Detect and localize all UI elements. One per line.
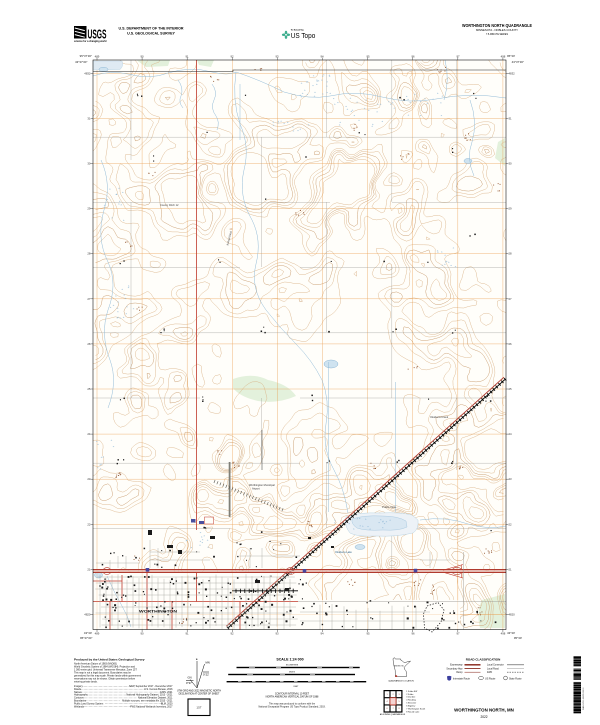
svg-text:25: 25 bbox=[87, 387, 91, 391]
svg-text:Interstate Route: Interstate Route bbox=[453, 678, 471, 681]
svg-text:498: 498 bbox=[501, 632, 506, 636]
svg-text:91: 91 bbox=[185, 632, 189, 636]
svg-text:Okabena Creek: Okabena Creek bbox=[430, 415, 449, 419]
svg-text:Local Connector: Local Connector bbox=[487, 664, 504, 667]
svg-text:5 Brewster: 5 Brewster bbox=[406, 702, 416, 705]
svg-text:NORTH AMERICAN VERTICAL DATUM: NORTH AMERICAN VERTICAL DATUM OF 1988 bbox=[266, 696, 319, 699]
svg-text:4832: 4832 bbox=[509, 71, 516, 75]
svg-text:US Route: US Route bbox=[485, 678, 496, 681]
svg-text:28: 28 bbox=[87, 252, 91, 256]
svg-text:★: ★ bbox=[196, 657, 199, 661]
svg-text:Prairie View: Prairie View bbox=[382, 505, 396, 509]
svg-text:43°37'30": 43°37'30" bbox=[75, 60, 87, 64]
svg-text:FEET: FEET bbox=[294, 686, 300, 688]
svg-text:26: 26 bbox=[509, 342, 513, 346]
svg-text:U.S. GEOLOGICAL SURVEY: U.S. GEOLOGICAL SURVEY bbox=[127, 32, 175, 36]
svg-text:97: 97 bbox=[456, 55, 460, 59]
svg-text:30: 30 bbox=[509, 162, 513, 166]
svg-text:Ramp: Ramp bbox=[456, 672, 463, 674]
svg-text:0°37´: 0°37´ bbox=[186, 681, 193, 685]
svg-text:25: 25 bbox=[509, 387, 513, 391]
svg-text:21: 21 bbox=[509, 567, 513, 571]
svg-text:95°30': 95°30' bbox=[514, 636, 523, 640]
svg-text:24: 24 bbox=[87, 432, 91, 436]
svg-text:95°30': 95°30' bbox=[507, 54, 516, 58]
svg-text:15T: 15T bbox=[196, 706, 201, 710]
svg-text:23: 23 bbox=[509, 477, 513, 481]
svg-text:US Topo: US Topo bbox=[291, 31, 316, 40]
svg-text:Wetlands: Wetlands bbox=[74, 705, 85, 708]
svg-text:43°37'30": 43°37'30" bbox=[512, 60, 524, 64]
svg-text:26: 26 bbox=[87, 342, 91, 346]
svg-text:4820: 4820 bbox=[509, 613, 516, 617]
svg-text:96: 96 bbox=[411, 55, 415, 59]
svg-text:31: 31 bbox=[509, 116, 513, 120]
svg-text:43°30': 43°30' bbox=[507, 631, 516, 635]
svg-text:498: 498 bbox=[501, 55, 506, 59]
svg-text:ADJOINING QUADRANGLES: ADJOINING QUADRANGLES bbox=[380, 713, 406, 716]
svg-text:6 Bigelow: 6 Bigelow bbox=[406, 706, 416, 708]
svg-text:24: 24 bbox=[509, 432, 513, 436]
svg-text:95°37'30": 95°37'30" bbox=[80, 636, 92, 640]
svg-text:GN: GN bbox=[188, 676, 192, 680]
svg-text:FWS National Wetlands Inventor: FWS National Wetlands Inventory, 2017 bbox=[130, 705, 173, 708]
svg-text:94: 94 bbox=[320, 632, 324, 636]
svg-text:96: 96 bbox=[411, 632, 415, 636]
svg-text:8 Round Lake: 8 Round Lake bbox=[406, 711, 420, 713]
svg-text:Okabena Lake: Okabena Lake bbox=[335, 550, 352, 554]
svg-text:2 Fulda: 2 Fulda bbox=[406, 694, 414, 696]
svg-text:U.S. DEPARTMENT OF THE INTERIO: U.S. DEPARTMENT OF THE INTERIOR bbox=[118, 27, 183, 31]
svg-text:95: 95 bbox=[366, 632, 370, 636]
svg-text:95: 95 bbox=[366, 55, 370, 59]
svg-text:27: 27 bbox=[509, 297, 513, 301]
svg-text:1 Fulda SW: 1 Fulda SW bbox=[406, 691, 417, 693]
svg-text:97: 97 bbox=[456, 632, 460, 636]
svg-text:92: 92 bbox=[230, 632, 234, 636]
svg-text:489: 489 bbox=[95, 55, 100, 59]
svg-text:WORTHINGTON NORTH, MN: WORTHINGTON NORTH, MN bbox=[454, 708, 514, 713]
svg-text:4832: 4832 bbox=[84, 71, 91, 75]
svg-text:MINNESOTA: MINNESOTA bbox=[394, 665, 405, 668]
svg-text:7.5-MINUTE SERIES: 7.5-MINUTE SERIES bbox=[486, 32, 508, 36]
svg-text:ISBN 978-1-68295-000-0: ISBN 978-1-68295-000-0 bbox=[583, 687, 585, 710]
svg-text:489: 489 bbox=[95, 632, 100, 636]
svg-text:90: 90 bbox=[140, 632, 144, 636]
svg-text:entering private lands.: entering private lands. bbox=[74, 681, 98, 684]
svg-text:WORTHINGTON: WORTHINGTON bbox=[139, 609, 177, 613]
svg-text:4WD: 4WD bbox=[487, 672, 492, 674]
svg-text:29: 29 bbox=[87, 207, 91, 211]
svg-text:95°37'30": 95°37'30" bbox=[80, 54, 92, 58]
svg-text:County Ditch 12: County Ditch 12 bbox=[160, 203, 179, 207]
svg-text:Expressway: Expressway bbox=[450, 664, 463, 667]
svg-text:3 Dundee: 3 Dundee bbox=[406, 697, 416, 699]
svg-text:0°22´: 0°22´ bbox=[203, 673, 210, 677]
svg-text:UTM GRID AND 2022 MAGNETIC NOR: UTM GRID AND 2022 MAGNETIC NORTH bbox=[177, 690, 221, 693]
svg-text:94: 94 bbox=[320, 55, 324, 59]
svg-text:science for a changing world: science for a changing world bbox=[74, 41, 107, 43]
svg-text:28: 28 bbox=[509, 252, 513, 256]
svg-text:7 Worthington South: 7 Worthington South bbox=[406, 708, 426, 711]
svg-text:Worthington Municipal: Worthington Municipal bbox=[249, 483, 275, 487]
svg-text:Local Road: Local Road bbox=[487, 668, 499, 670]
svg-text:KILOMETERS: KILOMETERS bbox=[286, 665, 299, 667]
svg-text:30: 30 bbox=[87, 162, 91, 166]
svg-text:Airport: Airport bbox=[252, 486, 260, 490]
svg-text:21: 21 bbox=[87, 567, 91, 571]
svg-text:22: 22 bbox=[87, 522, 91, 526]
svg-text:43°30': 43°30' bbox=[84, 631, 93, 635]
svg-text:4820: 4820 bbox=[84, 613, 91, 617]
svg-text:27: 27 bbox=[87, 297, 91, 301]
svg-text:22: 22 bbox=[509, 522, 513, 526]
svg-text:Produced by the United States: Produced by the United States Geological… bbox=[74, 658, 145, 662]
svg-text:National Geospatial Program US: National Geospatial Program US Topo Prod… bbox=[258, 706, 325, 709]
svg-text:DECLINATION AT CENTER OF SHEET: DECLINATION AT CENTER OF SHEET bbox=[179, 692, 220, 695]
svg-text:29: 29 bbox=[509, 207, 513, 211]
svg-text:31: 31 bbox=[87, 116, 91, 120]
svg-text:MILES: MILES bbox=[289, 672, 295, 674]
svg-text:QUADRANGLE LOCATION: QUADRANGLE LOCATION bbox=[388, 680, 414, 683]
svg-text:23: 23 bbox=[87, 477, 91, 481]
svg-text:SCALE 1:24 000: SCALE 1:24 000 bbox=[276, 657, 303, 661]
svg-text:93: 93 bbox=[275, 632, 279, 636]
svg-text:MN: MN bbox=[206, 661, 210, 665]
svg-text:2022: 2022 bbox=[480, 715, 487, 719]
svg-text:ROAD CLASSIFICATION: ROAD CLASSIFICATION bbox=[466, 658, 501, 662]
svg-text:USGS: USGS bbox=[88, 28, 107, 42]
svg-text:State Route: State Route bbox=[509, 678, 522, 681]
svg-text:Secondary Hwy: Secondary Hwy bbox=[446, 667, 463, 670]
svg-text:4 Reading: 4 Reading bbox=[406, 700, 416, 702]
